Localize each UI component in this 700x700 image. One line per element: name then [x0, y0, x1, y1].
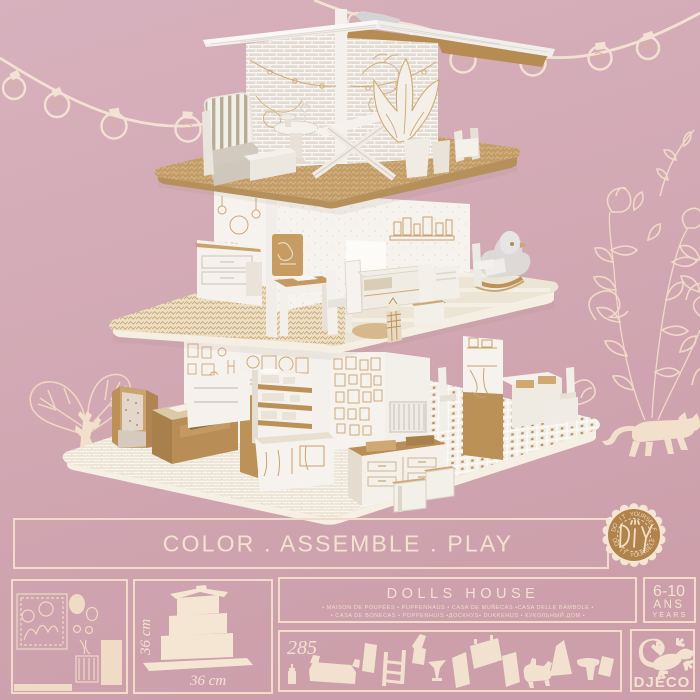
svg-text:• CASA DE BONECAS • POPPENHUIS: • CASA DE BONECAS • POPPENHUIS •ДОСКНУS•…: [331, 611, 585, 619]
svg-text:36 cm: 36 cm: [138, 619, 154, 656]
svg-text:• MAISON DE POUPÉES • PUPPENHA: • MAISON DE POUPÉES • PUPPENHAUS • CASA …: [322, 604, 594, 611]
svg-text:6-10: 6-10: [653, 583, 685, 600]
svg-text:COLOR . ASSEMBLE . PLAY: COLOR . ASSEMBLE . PLAY: [163, 531, 514, 557]
svg-text:36 cm: 36 cm: [189, 673, 226, 689]
svg-text:285: 285: [287, 637, 317, 659]
svg-text:DOLLS HOUSE: DOLLS HOUSE: [387, 586, 540, 602]
svg-text:DJECO: DJECO: [634, 674, 691, 691]
svg-text:YEARS: YEARS: [652, 610, 687, 619]
